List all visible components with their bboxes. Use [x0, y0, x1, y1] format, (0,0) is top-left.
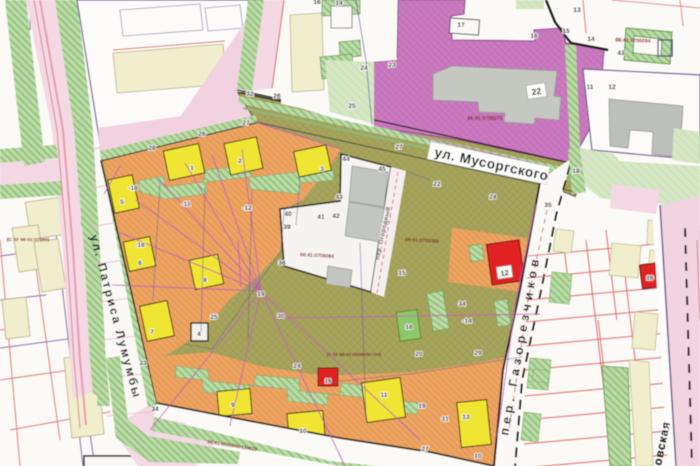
- svg-text:30: 30: [277, 313, 285, 320]
- svg-text:35: 35: [544, 202, 552, 209]
- svg-text:4: 4: [197, 331, 201, 338]
- svg-text:13: 13: [573, 7, 581, 14]
- svg-text:45: 45: [378, 166, 386, 173]
- svg-text:36: 36: [278, 260, 286, 267]
- svg-text:18: 18: [405, 324, 413, 331]
- svg-text:66:41:0706094: 66:41:0706094: [615, 37, 650, 44]
- svg-text:26: 26: [273, 93, 281, 100]
- svg-text:12: 12: [608, 84, 616, 91]
- svg-text:24: 24: [293, 363, 301, 370]
- svg-text:43: 43: [335, 194, 343, 201]
- svg-text:22: 22: [433, 181, 441, 188]
- svg-text:16: 16: [530, 33, 538, 40]
- svg-text:28: 28: [489, 194, 497, 201]
- svg-text:13: 13: [462, 414, 470, 421]
- svg-text:29: 29: [474, 350, 482, 357]
- svg-text:2: 2: [238, 158, 242, 165]
- svg-text:-18: -18: [128, 185, 138, 192]
- svg-text:42: 42: [332, 213, 340, 220]
- svg-text:17: 17: [457, 22, 465, 29]
- svg-text:24: 24: [360, 65, 368, 72]
- svg-text:7: 7: [150, 329, 154, 336]
- svg-text:5: 5: [120, 199, 124, 206]
- svg-text:27: 27: [421, 446, 429, 453]
- svg-text:-12: -12: [242, 205, 252, 212]
- svg-text:19: 19: [257, 291, 265, 298]
- svg-text:14: 14: [335, 0, 343, 7]
- svg-text:16: 16: [313, 0, 321, 6]
- svg-text:34: 34: [151, 406, 159, 413]
- svg-text:66:41:0706075: 66:41:0706075: [467, 116, 502, 122]
- svg-text:15: 15: [398, 270, 406, 277]
- svg-text:1: 1: [190, 165, 194, 172]
- svg-text:27: 27: [242, 120, 250, 127]
- svg-text:22: 22: [531, 86, 542, 97]
- svg-text:31: 31: [441, 416, 449, 423]
- svg-text:9: 9: [231, 402, 235, 409]
- svg-text:15: 15: [562, 28, 570, 35]
- svg-text:44: 44: [342, 156, 350, 163]
- svg-text:11: 11: [380, 392, 387, 399]
- svg-text:8: 8: [203, 277, 207, 284]
- svg-text:26: 26: [198, 131, 206, 138]
- svg-text:(С ЗУ 66:41:0000000:704): (С ЗУ 66:41:0000000:704): [327, 352, 382, 357]
- svg-text:43: 43: [617, 50, 625, 57]
- svg-text:10: 10: [474, 453, 482, 460]
- svg-text:39: 39: [283, 224, 291, 231]
- svg-text:34: 34: [458, 301, 466, 308]
- svg-text:-16: -16: [135, 242, 145, 249]
- svg-text:27: 27: [395, 144, 403, 151]
- svg-text:-14: -14: [462, 318, 472, 325]
- svg-text:28: 28: [148, 145, 156, 152]
- svg-text:14: 14: [587, 36, 595, 43]
- svg-text:3: 3: [320, 166, 324, 173]
- svg-text:40: 40: [284, 211, 292, 218]
- svg-text:32: 32: [246, 91, 254, 98]
- svg-text:23: 23: [388, 62, 396, 69]
- svg-text:19: 19: [418, 403, 426, 410]
- svg-text:(С ЗУ 66:41:07060): (С ЗУ 66:41:07060): [7, 237, 50, 243]
- svg-text:20: 20: [415, 351, 423, 358]
- svg-text:12: 12: [500, 268, 510, 278]
- svg-text:10: 10: [299, 428, 307, 435]
- svg-text:25: 25: [348, 103, 356, 110]
- svg-text:11: 11: [586, 84, 593, 91]
- svg-text:18: 18: [572, 168, 580, 175]
- svg-text:41: 41: [317, 214, 325, 221]
- svg-text:6: 6: [138, 260, 142, 267]
- svg-text:33: 33: [139, 360, 147, 367]
- svg-text:16: 16: [325, 379, 332, 385]
- svg-text:25: 25: [210, 314, 218, 321]
- svg-text:16: 16: [646, 275, 654, 282]
- svg-text:-11: -11: [181, 201, 191, 208]
